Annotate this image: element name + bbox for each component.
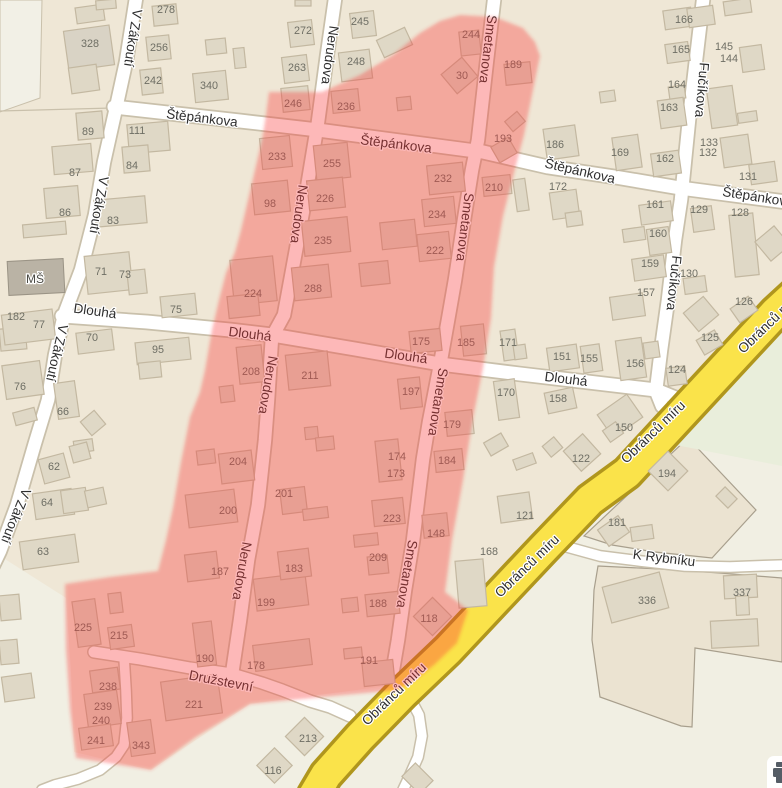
- svg-text:172: 172: [549, 181, 567, 193]
- svg-text:122: 122: [572, 453, 590, 465]
- svg-text:337: 337: [733, 587, 751, 599]
- svg-text:186: 186: [546, 139, 564, 151]
- svg-text:248: 248: [347, 56, 365, 68]
- svg-text:158: 158: [549, 393, 567, 405]
- svg-text:157: 157: [637, 287, 655, 299]
- svg-text:95: 95: [152, 344, 164, 356]
- svg-text:73: 73: [119, 269, 131, 281]
- svg-text:162: 162: [656, 153, 674, 165]
- svg-text:278: 278: [157, 4, 175, 16]
- svg-text:165: 165: [672, 44, 690, 56]
- svg-text:171: 171: [499, 337, 517, 349]
- svg-text:166: 166: [675, 14, 693, 26]
- svg-text:150: 150: [615, 422, 633, 434]
- svg-text:156: 156: [626, 358, 644, 370]
- svg-text:181: 181: [608, 517, 626, 529]
- svg-text:128: 128: [731, 207, 749, 219]
- svg-text:256: 256: [150, 42, 168, 54]
- svg-text:151: 151: [553, 351, 571, 363]
- svg-text:328: 328: [81, 38, 99, 50]
- svg-text:144: 144: [720, 53, 738, 65]
- svg-text:111: 111: [129, 125, 145, 137]
- svg-text:336: 336: [638, 595, 656, 607]
- svg-text:169: 169: [611, 147, 629, 159]
- svg-text:145: 145: [715, 41, 733, 53]
- svg-text:MŠ: MŠ: [26, 271, 44, 286]
- svg-text:263: 263: [288, 62, 306, 74]
- svg-text:245: 245: [351, 16, 369, 28]
- svg-text:64: 64: [41, 497, 53, 509]
- svg-text:121: 121: [516, 510, 534, 522]
- svg-text:116: 116: [264, 765, 281, 777]
- svg-text:170: 170: [497, 387, 515, 399]
- svg-text:70: 70: [86, 332, 98, 344]
- svg-text:160: 160: [649, 228, 667, 240]
- svg-text:71: 71: [95, 266, 107, 278]
- svg-text:89: 89: [82, 126, 94, 138]
- svg-text:161: 161: [646, 199, 664, 211]
- svg-text:132: 132: [699, 147, 717, 159]
- svg-text:163: 163: [660, 102, 678, 114]
- svg-text:340: 340: [200, 80, 218, 92]
- svg-text:272: 272: [294, 25, 312, 37]
- svg-text:62: 62: [48, 461, 60, 473]
- svg-text:63: 63: [37, 546, 49, 558]
- svg-text:83: 83: [107, 215, 119, 227]
- svg-text:159: 159: [641, 258, 659, 270]
- svg-text:124: 124: [668, 364, 686, 376]
- svg-text:75: 75: [170, 304, 182, 316]
- svg-text:194: 194: [658, 468, 676, 480]
- svg-text:84: 84: [126, 160, 138, 172]
- svg-text:126: 126: [735, 296, 753, 308]
- svg-text:86: 86: [59, 207, 71, 219]
- svg-text:213: 213: [299, 733, 317, 745]
- svg-text:242: 242: [144, 75, 162, 87]
- svg-text:182: 182: [7, 311, 25, 323]
- svg-text:87: 87: [69, 167, 81, 179]
- svg-text:66: 66: [57, 406, 69, 418]
- svg-text:168: 168: [480, 546, 498, 558]
- svg-text:76: 76: [14, 381, 26, 393]
- svg-text:129: 129: [690, 204, 708, 216]
- svg-text:125: 125: [701, 332, 719, 344]
- svg-text:164: 164: [668, 79, 686, 91]
- svg-text:77: 77: [33, 319, 45, 331]
- svg-text:131: 131: [739, 171, 757, 183]
- svg-text:155: 155: [580, 353, 598, 365]
